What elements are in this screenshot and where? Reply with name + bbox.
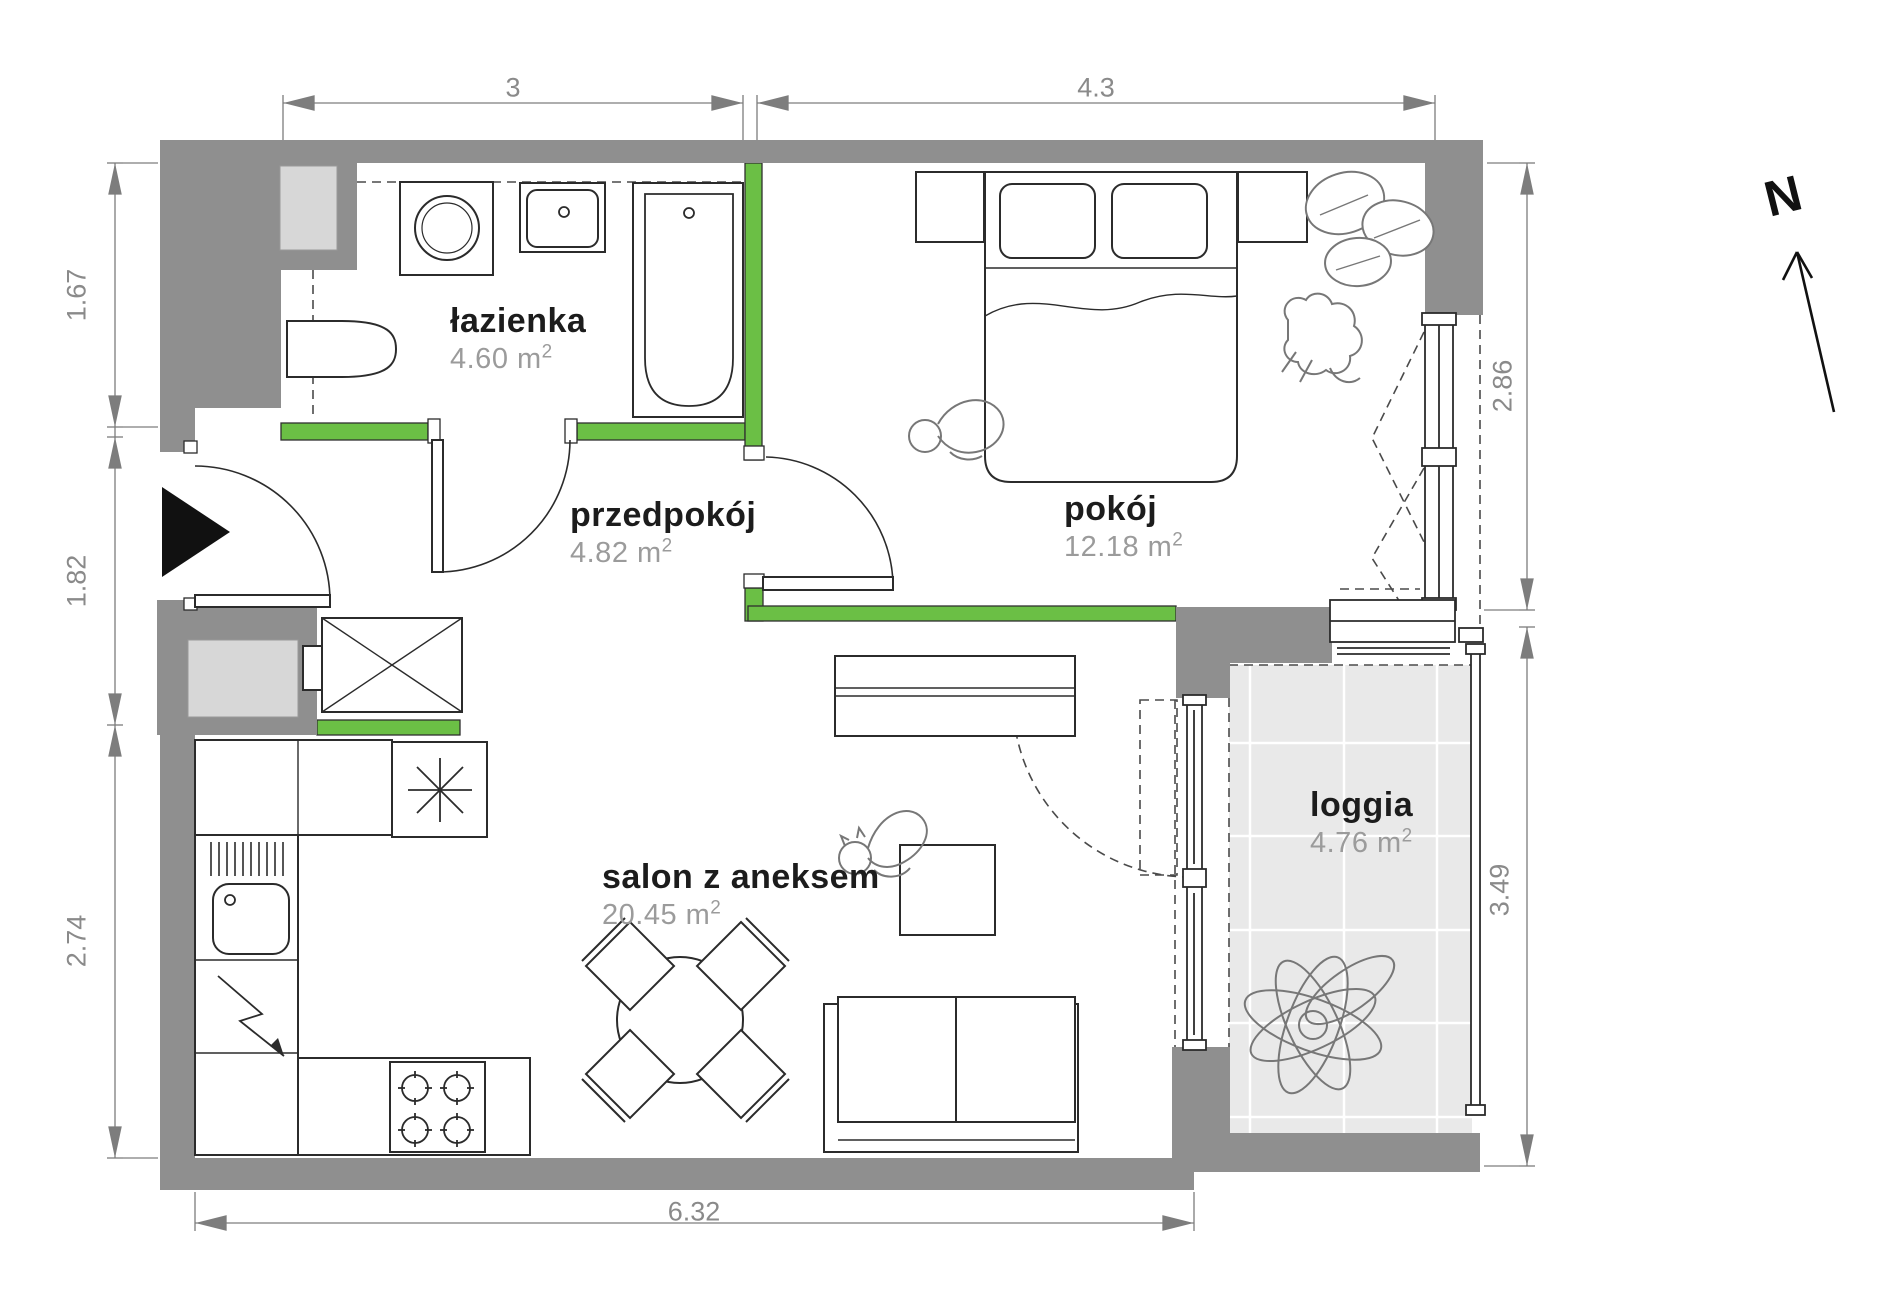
entrance-arrow-icon: [162, 487, 230, 577]
hall-wardrobe: [303, 618, 462, 712]
pokoj-door-leaf: [763, 577, 893, 590]
toilet-icon: [287, 321, 396, 377]
pillow: [1112, 184, 1207, 258]
wall-loggia-west-bottom: [1172, 1047, 1230, 1133]
green-wall-kitchen: [317, 720, 460, 735]
dim-bottom-1: 6.32: [668, 1197, 721, 1228]
wall-south: [160, 1158, 1194, 1190]
shaft-hall: [188, 640, 298, 717]
green-wall-pokoj-south: [748, 606, 1176, 621]
loggia-glazing: [1471, 652, 1480, 1107]
coffee-table: [900, 845, 995, 935]
washing-machine-icon: [400, 182, 493, 275]
dim-left-1: 1.67: [62, 269, 93, 322]
bathroom-door-leaf: [432, 440, 443, 572]
doors: [195, 440, 893, 607]
wall-north: [160, 140, 1483, 163]
wall-west-upper: [160, 163, 195, 452]
dim-right-1: 2.86: [1488, 360, 1519, 413]
north-arrow-icon: [1783, 252, 1834, 412]
shaft-bathroom: [280, 166, 337, 250]
sofa: [824, 997, 1078, 1152]
green-wall-bath-right: [577, 423, 745, 440]
dim-right-2: 3.49: [1485, 864, 1516, 917]
dim-left-3: 2.74: [62, 915, 93, 968]
wall-loggia-west-top: [1176, 663, 1230, 698]
nightstand-right: [1238, 172, 1307, 242]
kitchen-upper-cabinets: [195, 740, 392, 835]
stove-icon: [390, 1062, 485, 1152]
bathroom-door-swing: [438, 440, 570, 572]
living-room-furniture: [582, 656, 1078, 1152]
wall-bath-west: [195, 270, 281, 408]
dim-top-1: 3: [505, 73, 520, 104]
door-jambs: [184, 419, 764, 610]
tv-sideboard: [835, 656, 1075, 736]
kitchen-sink-icon: [213, 884, 289, 954]
dog-icon: [1282, 294, 1362, 382]
monstera-plant-icon: [1298, 162, 1440, 288]
pillow: [1000, 184, 1095, 258]
balcony-door-leaf-projection: [1140, 700, 1177, 875]
dim-left-2: 1.82: [62, 555, 93, 608]
dim-top-2: 4.3: [1077, 73, 1115, 104]
kitchen: [195, 740, 530, 1155]
extractor-hob-icon: [392, 742, 487, 837]
entrance-door-leaf: [195, 595, 330, 607]
bedroom-furniture: [916, 172, 1307, 482]
green-wall-hall-east: [745, 163, 762, 460]
green-wall-bath-left: [281, 423, 428, 440]
washbasin-icon: [520, 183, 605, 252]
bathtub-icon: [633, 183, 743, 417]
floorplan-page: łazienka 4.60 m2 przedpokój 4.82 m2 pokó…: [0, 0, 1900, 1313]
wall-east-corner: [1425, 163, 1483, 315]
nightstand-left: [916, 172, 984, 242]
wall-loggia-south: [1172, 1133, 1480, 1172]
floorplan-drawing: [0, 0, 1900, 1313]
wall-west-lower: [160, 735, 195, 1190]
pokoj-door-swing: [766, 457, 893, 584]
window-casement-swing: [1372, 332, 1424, 542]
wall-loggia-north: [1176, 607, 1332, 663]
